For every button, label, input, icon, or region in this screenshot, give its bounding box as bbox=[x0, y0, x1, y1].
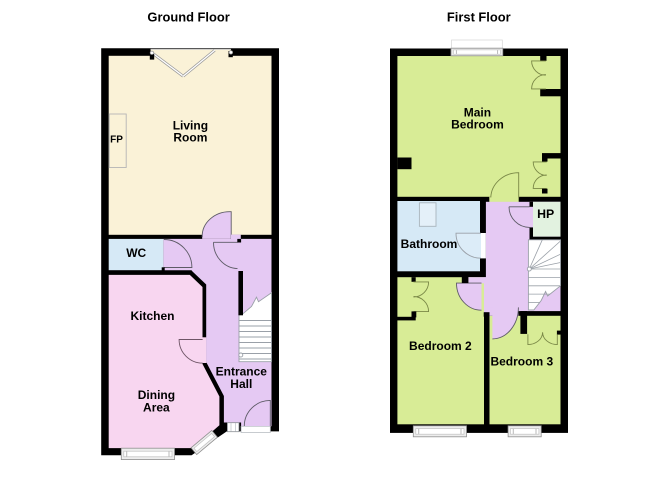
svg-text:Bathroom: Bathroom bbox=[401, 237, 458, 251]
svg-text:Ground Floor: Ground Floor bbox=[147, 10, 229, 25]
svg-text:FP: FP bbox=[110, 135, 123, 146]
svg-text:HP: HP bbox=[537, 207, 554, 221]
svg-text:Hall: Hall bbox=[230, 377, 252, 391]
svg-text:Room: Room bbox=[173, 131, 207, 145]
svg-text:Bedroom: Bedroom bbox=[451, 118, 504, 132]
svg-text:Bedroom 2: Bedroom 2 bbox=[409, 339, 472, 353]
svg-text:Bedroom 3: Bedroom 3 bbox=[490, 355, 553, 369]
svg-text:WC: WC bbox=[126, 246, 146, 260]
svg-text:Area: Area bbox=[143, 401, 170, 415]
svg-text:Kitchen: Kitchen bbox=[130, 309, 174, 323]
svg-text:First Floor: First Floor bbox=[447, 10, 511, 25]
